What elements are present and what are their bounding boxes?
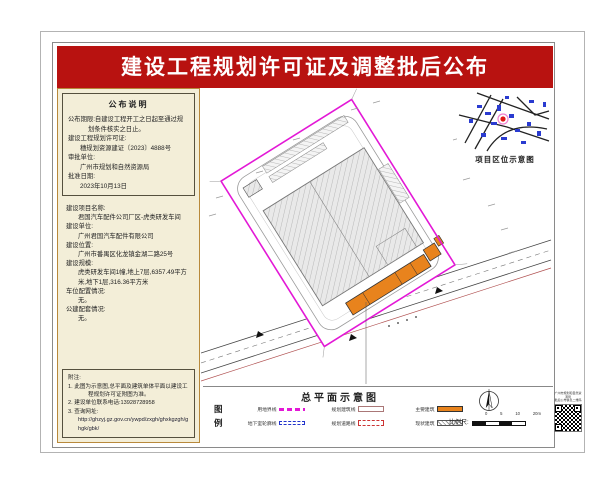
legend-swatch-site-boundary	[279, 408, 305, 411]
notice-heading: 公布说明	[68, 99, 189, 110]
qr-finder	[555, 424, 562, 431]
project-name: 君国汽车配件公司厂区-虎类研发车间	[66, 213, 191, 222]
qr-caption: 批后公布信息二维码	[554, 399, 582, 403]
legend: 图例 用地界线 规划建筑线 主要建筑 地下室轮廓线	[214, 402, 462, 430]
legend-swatch-road-line	[358, 420, 384, 426]
legend-item: 规划道路线	[308, 420, 384, 427]
note-item: 1. 此图为示意图,总平面及建筑单体平面以建设工程规划许可证附图为准。	[68, 383, 189, 400]
legend-label: 规划建筑线	[332, 406, 356, 413]
scale-tick: 20m	[533, 411, 541, 416]
notice-line: 批准日期:	[68, 172, 189, 182]
approval-date: 2023年10月13日	[68, 182, 189, 192]
notice-box: 公布说明 公布期限:自建设工程开工之日起至通过规划条件核实之日止。 建设工程规划…	[62, 93, 195, 196]
scale-tick: 5	[500, 411, 502, 416]
scale-bar-segments	[472, 421, 526, 426]
project-label: 公建配套情况:	[66, 305, 191, 314]
project-label: 建设规模:	[66, 259, 191, 268]
location-map	[457, 89, 553, 153]
legend-label: 用地界线	[257, 406, 276, 413]
project-location: 广州市番禺区化龙镇金湖二路25号	[66, 250, 191, 259]
legend-heading: 图例	[214, 402, 223, 430]
scale-tick: 10	[515, 411, 520, 416]
note-item: 2. 建设单位联系电话:13928728958	[68, 399, 189, 407]
site-marker	[500, 116, 505, 121]
approval-authority: 广州市规划和自然资源局	[68, 163, 189, 173]
legend-swatch-planned-building	[358, 406, 384, 412]
notice-line: 建设工程规划许可证:	[68, 134, 189, 144]
note-item: 3. 查询网址:	[68, 408, 189, 416]
project-label: 建设项目名称:	[66, 204, 191, 213]
north-arrow	[477, 388, 501, 412]
location-map-caption: 项目区位示意图	[457, 154, 553, 165]
legend-label: 地下室轮廓线	[248, 420, 277, 427]
legend-label: 主要建筑	[415, 406, 434, 413]
site-parcel	[209, 88, 469, 359]
notice-line: 审批单位:	[68, 153, 189, 163]
legend-item: 地下室轮廓线	[229, 420, 305, 427]
project-scale: 虎类研发车间1幢,地上7层,6357.49平方米,地下1层,316.36平方米	[66, 268, 191, 286]
legend-item: 用地界线	[229, 406, 305, 413]
announcement-sheet: 建设工程规划许可证及调整批后公布 公布说明 公布期限:自建设工程开工之日起至通过…	[0, 0, 600, 480]
page-title: 建设工程规划许可证及调整批后公布	[57, 46, 553, 88]
notes-box: 附注: 1. 此图为示意图,总平面及建筑单体平面以建设工程规划许可证附图为准。 …	[62, 369, 195, 438]
divider-line	[203, 386, 553, 387]
qr-block: 广州市规划和自然资源局 批后公布信息二维码	[554, 392, 582, 432]
notice-line: 公布期限:自建设工程开工之日起至通过规划条件核实之日止。	[68, 115, 189, 134]
project-label: 车位配置情况:	[66, 287, 191, 296]
legend-label: 现状建筑	[415, 420, 434, 427]
parking-info: 无。	[66, 296, 191, 305]
permit-number: 穗规划资源建证〔2023〕4888号	[68, 144, 189, 154]
query-url: http://ghzyj.gz.gov.cn/ywpd/zxgh/ghxkgzg…	[68, 416, 189, 433]
qr-finder	[555, 405, 562, 412]
legend-item: 规划建筑线	[308, 406, 384, 413]
project-info: 建设项目名称: 君国汽车配件公司厂区-虎类研发车间 建设单位: 广州君国汽车配件…	[58, 200, 199, 365]
legend-swatch-basement-outline	[279, 421, 305, 425]
scale-ticks: 0 5 10 20m	[485, 411, 541, 416]
project-label: 建设位置:	[66, 241, 191, 250]
scale-bar: 0 5 10 20m 比例尺:	[449, 411, 549, 426]
scale-tick: 0	[485, 411, 487, 416]
notes-heading: 附注:	[68, 374, 189, 382]
left-panel: 公布说明 公布期限:自建设工程开工之日起至通过规划条件核实之日止。 建设工程规划…	[57, 88, 200, 443]
legend-label: 规划道路线	[332, 420, 356, 427]
qr-finder	[574, 405, 581, 412]
builder-name: 广州君国汽车配件有限公司	[66, 232, 191, 241]
qr-code	[554, 404, 582, 432]
public-facility-info: 无。	[66, 314, 191, 323]
project-label: 建设单位:	[66, 222, 191, 231]
scale-label: 比例尺:	[449, 417, 469, 426]
